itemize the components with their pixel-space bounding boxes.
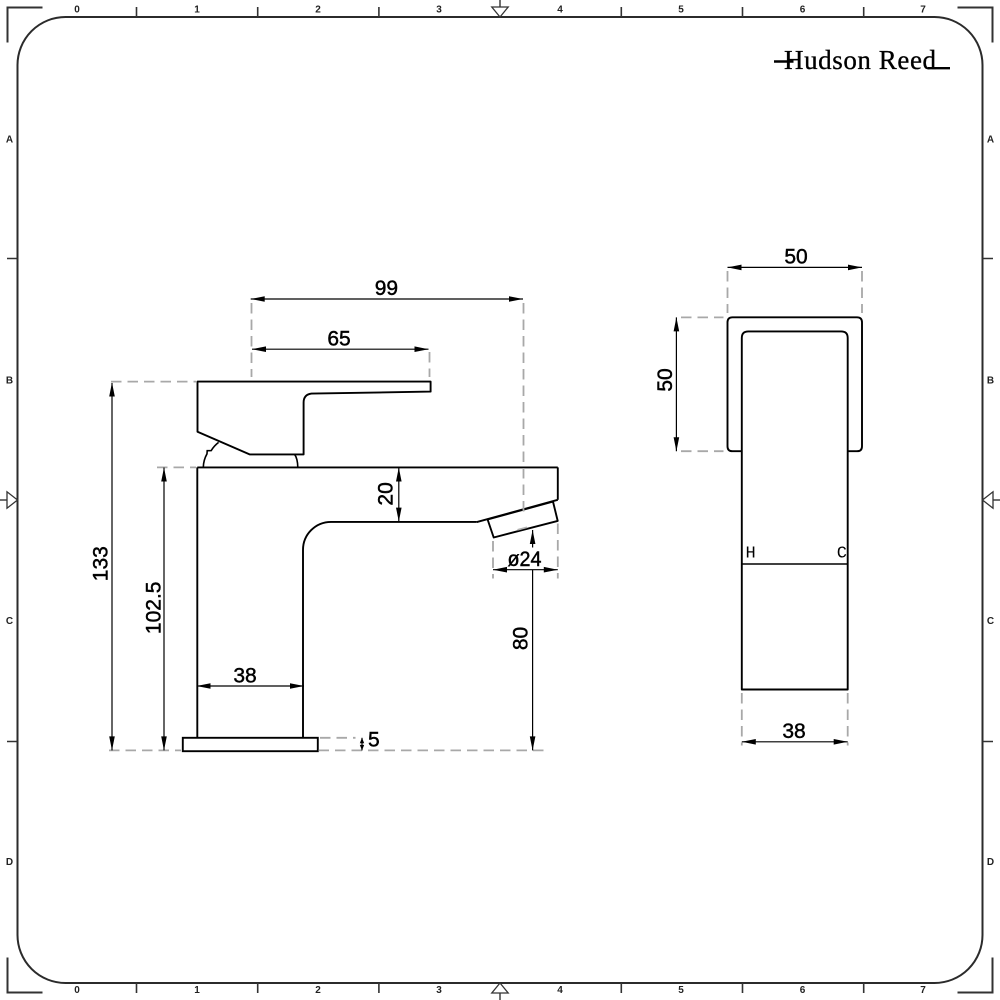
svg-text:ø24: ø24 xyxy=(508,548,542,571)
svg-text:5: 5 xyxy=(368,728,380,751)
svg-text:0: 0 xyxy=(74,5,80,16)
svg-text:5: 5 xyxy=(678,985,684,996)
svg-text:38: 38 xyxy=(782,720,805,743)
svg-text:50: 50 xyxy=(784,246,807,269)
svg-text:7: 7 xyxy=(920,5,926,16)
svg-text:65: 65 xyxy=(327,328,350,351)
svg-text:3: 3 xyxy=(436,5,442,16)
svg-text:C: C xyxy=(6,616,13,627)
svg-text:4: 4 xyxy=(557,985,563,996)
svg-text:1: 1 xyxy=(194,985,200,996)
svg-text:A: A xyxy=(987,135,994,146)
svg-text:Hudson Reed: Hudson Reed xyxy=(784,45,937,75)
svg-text:6: 6 xyxy=(800,985,806,996)
svg-text:133: 133 xyxy=(90,546,113,581)
svg-text:B: B xyxy=(6,376,13,387)
svg-text:99: 99 xyxy=(375,277,398,300)
svg-text:B: B xyxy=(987,376,994,387)
svg-text:C: C xyxy=(987,616,994,627)
svg-text:6: 6 xyxy=(800,5,806,16)
svg-text:7: 7 xyxy=(920,985,926,996)
svg-text:C: C xyxy=(837,544,847,563)
svg-text:20: 20 xyxy=(375,482,398,505)
svg-text:4: 4 xyxy=(557,5,563,16)
svg-text:5: 5 xyxy=(678,5,684,16)
svg-text:D: D xyxy=(6,857,13,868)
svg-text:102.5: 102.5 xyxy=(142,582,165,635)
svg-text:80: 80 xyxy=(510,627,533,650)
svg-text:0: 0 xyxy=(74,985,80,996)
svg-text:50: 50 xyxy=(654,368,677,391)
svg-text:2: 2 xyxy=(315,985,321,996)
svg-text:D: D xyxy=(987,857,994,868)
svg-text:A: A xyxy=(6,135,13,146)
svg-text:3: 3 xyxy=(436,985,442,996)
svg-text:2: 2 xyxy=(315,5,321,16)
svg-text:38: 38 xyxy=(233,664,256,687)
svg-text:H: H xyxy=(746,544,756,563)
svg-text:1: 1 xyxy=(194,5,200,16)
